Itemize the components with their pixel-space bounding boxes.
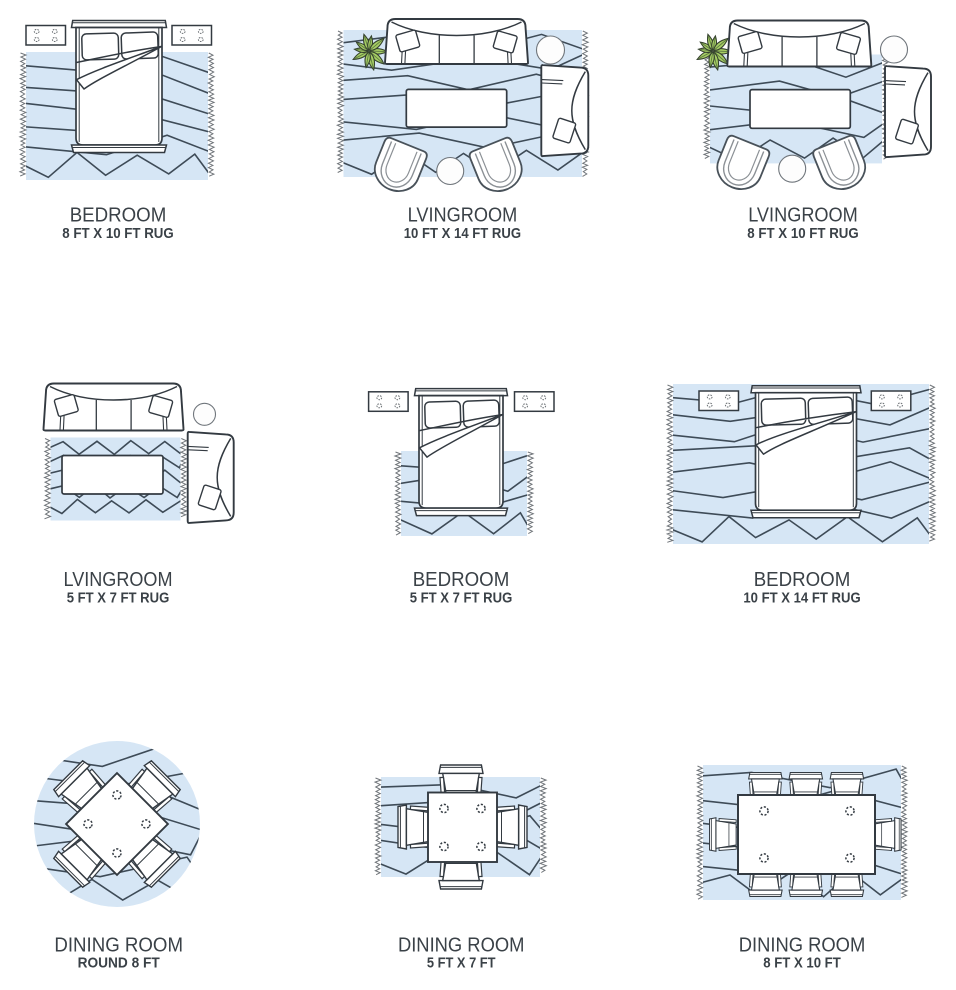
svg-text:10 FT X 14 FT RUG: 10 FT X 14 FT RUG [404, 225, 521, 242]
svg-text:BEDROOM: BEDROOM [754, 568, 851, 591]
svg-text:8 FT X 10 FT RUG: 8 FT X 10 FT RUG [747, 225, 859, 242]
svg-text:DINING ROOM: DINING ROOM [398, 933, 525, 956]
svg-text:8 FT X 10 FT: 8 FT X 10 FT [763, 955, 841, 972]
svg-text:5 FT X 7 FT RUG: 5 FT X 7 FT RUG [410, 589, 513, 606]
svg-text:LVINGROOM: LVINGROOM [64, 568, 173, 591]
svg-text:DINING ROOM: DINING ROOM [54, 933, 183, 956]
svg-text:LVINGROOM: LVINGROOM [408, 204, 518, 227]
svg-text:5 FT X 7 FT: 5 FT X 7 FT [427, 955, 496, 972]
svg-text:ROUND 8 FT: ROUND 8 FT [78, 955, 160, 972]
svg-text:BEDROOM: BEDROOM [413, 568, 510, 591]
svg-text:8 FT X 10 FT RUG: 8 FT X 10 FT RUG [62, 225, 174, 242]
svg-text:BEDROOM: BEDROOM [70, 204, 167, 227]
svg-text:5 FT X 7 FT RUG: 5 FT X 7 FT RUG [67, 589, 170, 606]
svg-text:10 FT X 14 FT RUG: 10 FT X 14 FT RUG [743, 589, 860, 606]
svg-text:LVINGROOM: LVINGROOM [748, 204, 858, 227]
svg-text:DINING ROOM: DINING ROOM [739, 933, 866, 956]
